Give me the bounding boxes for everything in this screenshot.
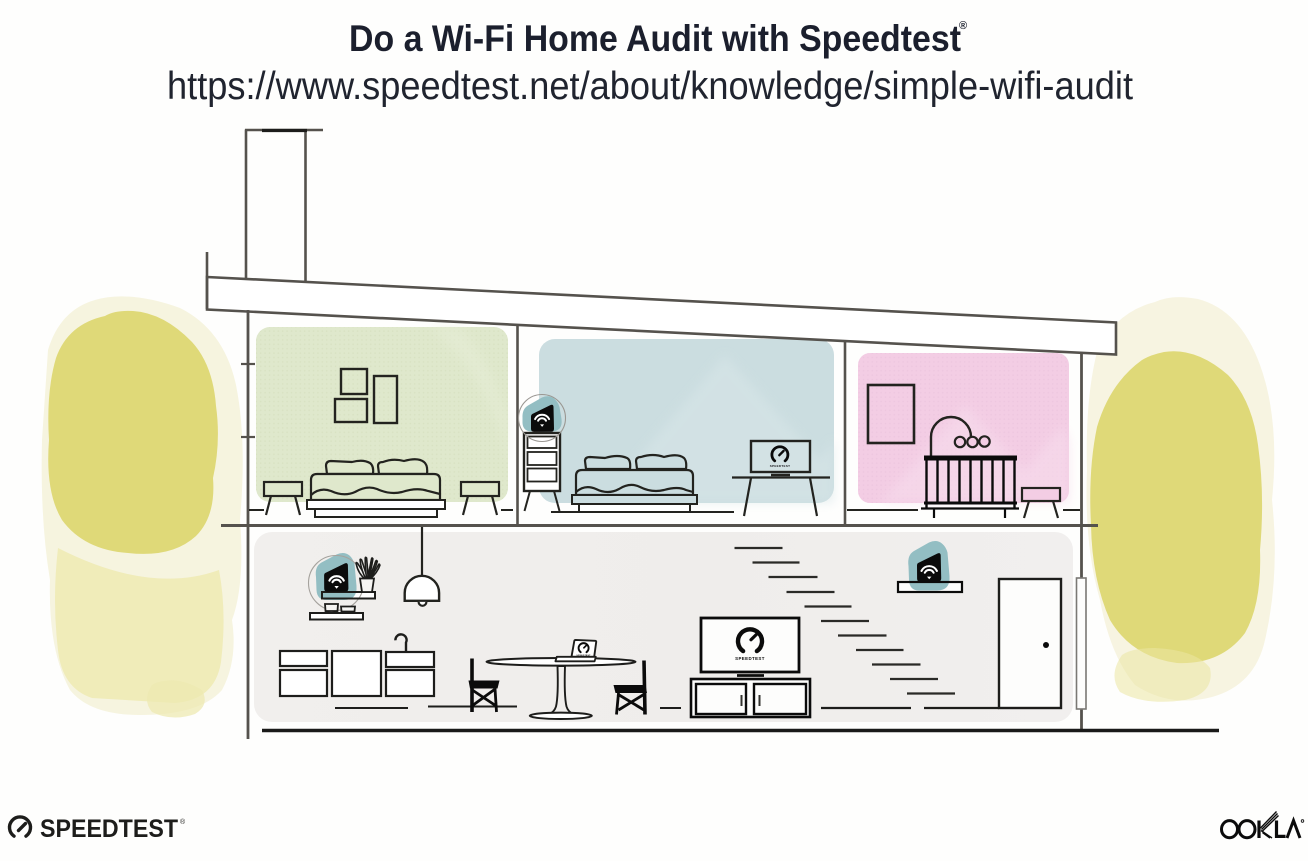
svg-text:Do a Wi-Fi Home Audit with Spe: Do a Wi-Fi Home Audit with Speedtest: [349, 18, 961, 59]
svg-text:SPEEDTEST: SPEEDTEST: [40, 815, 178, 843]
svg-text:SPEEDTEST: SPEEDTEST: [735, 656, 765, 661]
svg-text:®: ®: [180, 818, 186, 826]
svg-text:https://www.speedtest.net/abou: https://www.speedtest.net/about/knowledg…: [167, 65, 1133, 108]
svg-text:®: ®: [959, 20, 967, 32]
svg-text:SPEEDTEST: SPEEDTEST: [770, 464, 791, 468]
